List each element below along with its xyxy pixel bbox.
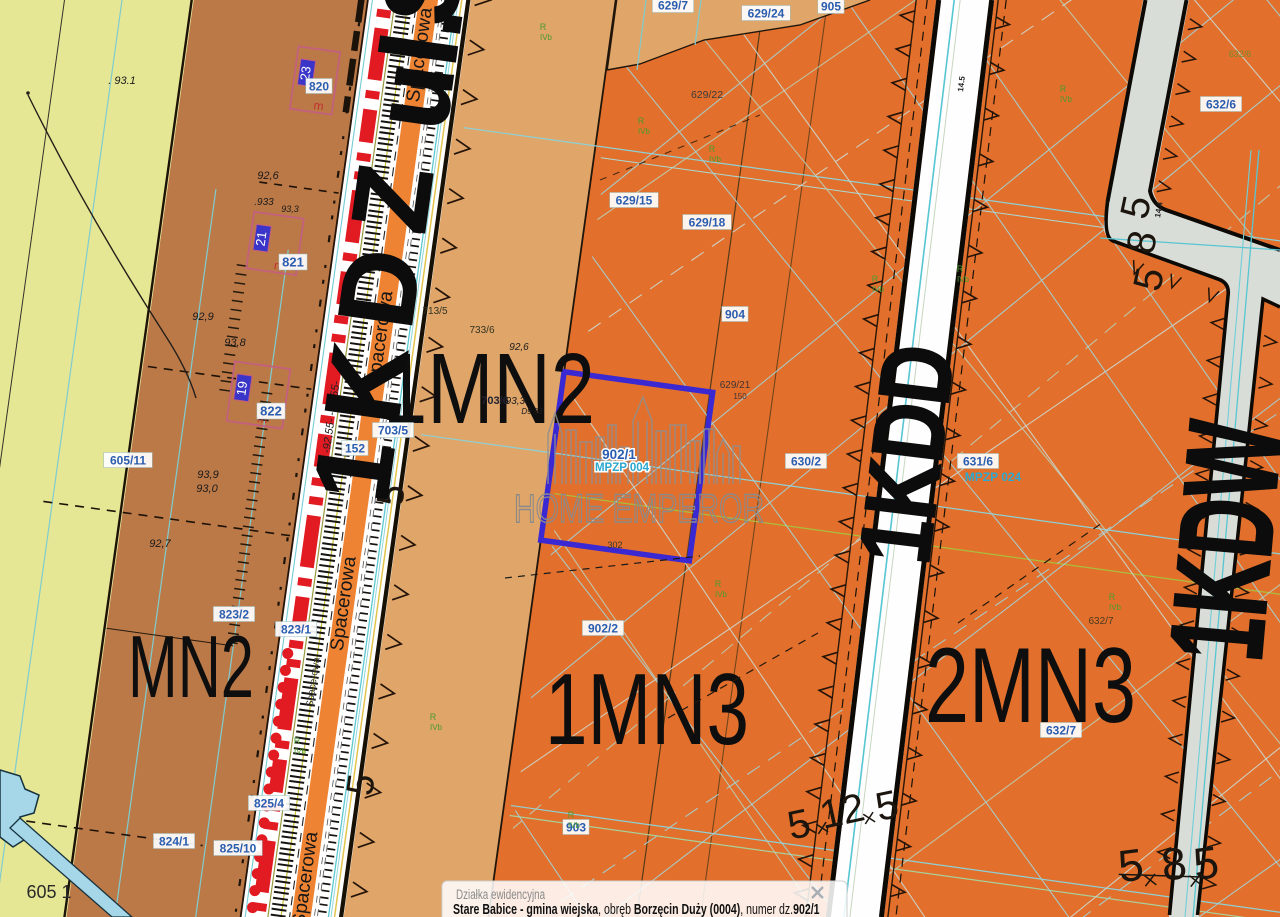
svg-text:.933: .933 [254, 197, 274, 208]
svg-text:R: R [540, 22, 547, 32]
svg-text:21: 21 [253, 231, 270, 247]
svg-text:IVb: IVb [957, 275, 970, 284]
svg-text:R: R [715, 579, 722, 589]
svg-text:904: 904 [725, 307, 745, 321]
svg-text:IVb: IVb [1060, 95, 1073, 104]
svg-text:Stare Babice - gmina wiejska,: Stare Babice - gmina wiejska, obręb Borz… [453, 900, 820, 917]
svg-text:IVb: IVb [709, 155, 722, 164]
svg-text:D9 93: D9 93 [521, 407, 543, 416]
svg-text:2MN3: 2MN3 [925, 625, 1136, 745]
svg-text:823/1: 823/1 [281, 622, 311, 636]
svg-text:822: 822 [260, 404, 282, 419]
svg-text:R: R [872, 274, 879, 284]
svg-text:902/1: 902/1 [602, 447, 636, 462]
svg-text:R: R [1060, 84, 1067, 94]
svg-text:632/6: 632/6 [1229, 49, 1252, 59]
svg-text:R: R [430, 712, 437, 722]
svg-text:733/6: 733/6 [469, 325, 494, 336]
svg-text:630/2: 630/2 [791, 454, 821, 468]
svg-text:R: R [638, 116, 645, 126]
svg-text:713/5: 713/5 [422, 306, 447, 317]
svg-text:R: R [709, 144, 716, 154]
svg-text:150: 150 [733, 392, 747, 401]
svg-text:629/24: 629/24 [748, 6, 785, 20]
svg-text:MPZP 004: MPZP 004 [595, 462, 650, 474]
svg-text:93,3: 93,3 [281, 204, 299, 214]
svg-text:MPZP 024: MPZP 024 [965, 470, 1022, 484]
svg-text:93,8: 93,8 [224, 337, 246, 349]
svg-text:IVb: IVb [568, 821, 581, 830]
svg-text:605 1: 605 1 [26, 882, 71, 902]
svg-text:629/7: 629/7 [658, 0, 688, 12]
svg-text:703/5: 703/5 [378, 423, 408, 437]
svg-text:825/4: 825/4 [254, 796, 284, 810]
svg-text:R: R [1109, 592, 1116, 602]
svg-text:MN2: MN2 [128, 617, 254, 716]
svg-text:IVb: IVb [1109, 603, 1122, 612]
svg-text:92,6: 92,6 [509, 342, 529, 353]
svg-text:R: R [294, 736, 301, 746]
svg-text:302: 302 [607, 540, 622, 550]
svg-text:IVb: IVb [294, 747, 307, 756]
svg-text:IVb: IVb [638, 127, 651, 136]
svg-text:820: 820 [309, 79, 329, 93]
svg-text:821: 821 [282, 255, 304, 270]
svg-text:605/11: 605/11 [110, 453, 146, 467]
svg-text:825/10: 825/10 [220, 841, 257, 855]
svg-text:92,7: 92,7 [149, 538, 171, 550]
svg-text:152: 152 [345, 441, 365, 455]
svg-text:629/22: 629/22 [691, 89, 723, 101]
svg-text:632/7: 632/7 [1088, 616, 1113, 627]
svg-text:IVb: IVb [540, 33, 553, 42]
svg-text:93,0: 93,0 [196, 483, 218, 495]
svg-text:1KDW: 1KDW [1142, 416, 1280, 666]
svg-text:632/6: 632/6 [1206, 97, 1236, 111]
svg-text:HOME EMPEROR: HOME EMPEROR [514, 487, 764, 531]
svg-text:631/6: 631/6 [963, 454, 993, 468]
svg-text:1MN3: 1MN3 [545, 654, 749, 766]
svg-text:IVb: IVb [715, 590, 728, 599]
svg-text:902/2: 902/2 [588, 621, 618, 635]
svg-text:632/7: 632/7 [1046, 723, 1076, 737]
svg-text:IVb: IVb [430, 723, 443, 732]
svg-text:19: 19 [233, 380, 250, 396]
svg-text:629/21: 629/21 [720, 380, 751, 391]
svg-text:93,9: 93,9 [197, 469, 218, 481]
svg-text:824/1: 824/1 [159, 834, 189, 848]
svg-text:IVb: IVb [872, 285, 885, 294]
svg-text:823/2: 823/2 [219, 607, 249, 621]
svg-text:R: R [568, 810, 575, 820]
svg-text:629/15: 629/15 [616, 193, 653, 207]
svg-text:629/18: 629/18 [689, 215, 726, 229]
svg-text:905: 905 [821, 0, 841, 13]
svg-text:. 93.1: . 93.1 [108, 75, 136, 87]
svg-text:.93,3: .93,3 [503, 396, 526, 407]
svg-text:92,6: 92,6 [257, 170, 279, 182]
svg-text:m: m [313, 98, 325, 113]
svg-text:92,9: 92,9 [192, 311, 213, 323]
svg-text:R: R [957, 264, 964, 274]
